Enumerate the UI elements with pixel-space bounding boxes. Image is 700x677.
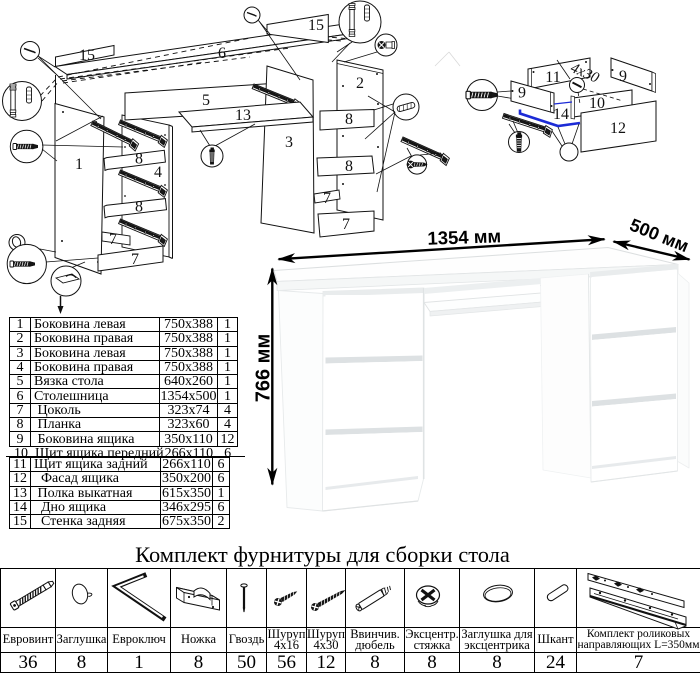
- svg-text:1: 1: [75, 156, 83, 173]
- svg-text:9: 9: [619, 68, 627, 85]
- svg-text:8: 8: [135, 151, 143, 168]
- svg-text:8: 8: [135, 199, 143, 216]
- svg-text:8: 8: [345, 111, 353, 128]
- svg-text:7: 7: [109, 231, 117, 248]
- svg-text:3: 3: [285, 134, 293, 151]
- svg-text:15: 15: [79, 47, 95, 64]
- svg-text:500 мм: 500 мм: [627, 215, 692, 257]
- svg-text:5: 5: [202, 92, 210, 109]
- svg-text:10: 10: [589, 95, 605, 112]
- svg-text:1354 мм: 1354 мм: [427, 225, 501, 249]
- svg-text:4: 4: [154, 164, 162, 181]
- svg-text:12: 12: [610, 120, 626, 137]
- svg-text:15: 15: [308, 17, 324, 34]
- svg-text:766 мм: 766 мм: [253, 334, 275, 403]
- svg-text:7: 7: [342, 216, 350, 233]
- svg-text:13: 13: [235, 107, 251, 124]
- svg-text:6: 6: [218, 45, 226, 62]
- svg-text:14: 14: [553, 106, 569, 123]
- svg-text:7: 7: [131, 251, 139, 268]
- svg-text:2: 2: [356, 75, 364, 92]
- svg-text:9: 9: [518, 85, 526, 102]
- svg-text:11: 11: [545, 69, 560, 86]
- svg-text:8: 8: [345, 158, 353, 175]
- svg-text:7: 7: [323, 190, 331, 207]
- svg-text:4x30: 4x30: [568, 60, 602, 87]
